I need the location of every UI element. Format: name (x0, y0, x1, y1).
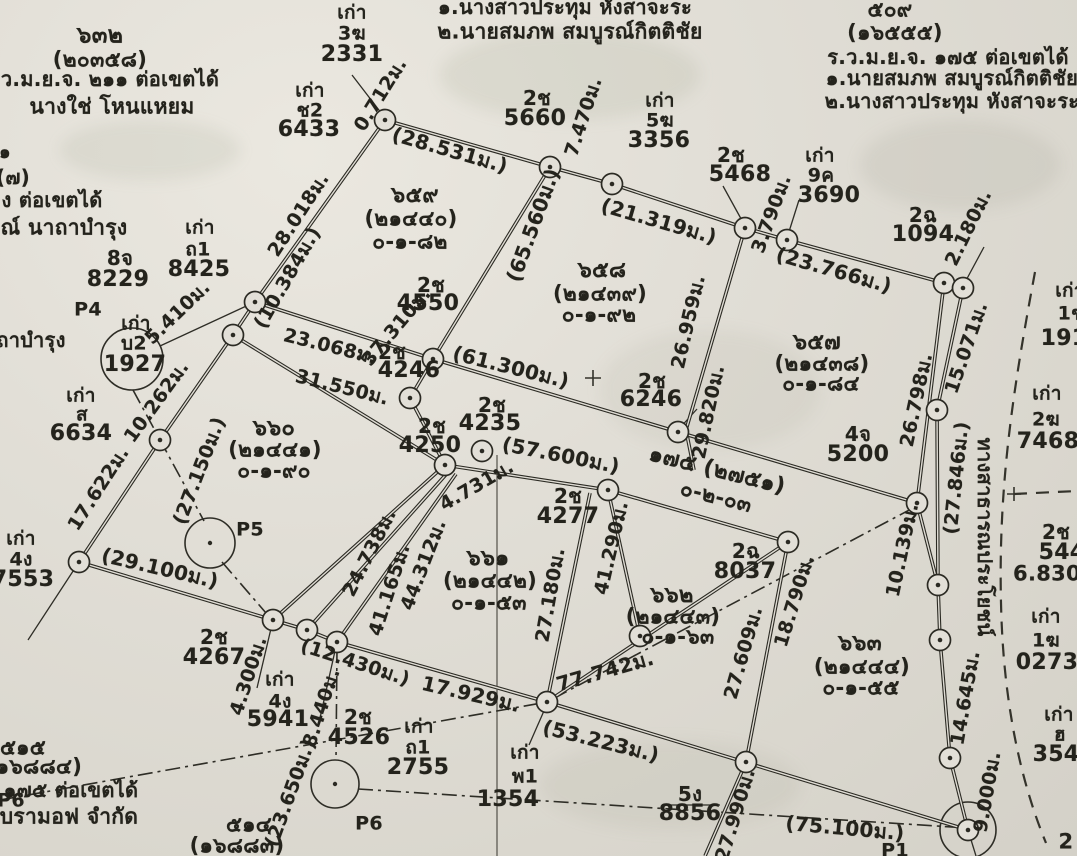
parcel-4277-no: 4277 (537, 506, 599, 528)
edge-left-partial-name2: ถาบำรุง (0, 330, 66, 350)
parcel-544-code: 2ช (1042, 522, 1070, 542)
old-marker-0273-kao: เก่า (1031, 608, 1061, 627)
edge-right-partial-2: 2 (1059, 832, 1074, 853)
parcel-8229-code: 8จ (107, 248, 133, 268)
old-marker-7553-kao: เก่า (6, 530, 36, 549)
old-marker-3356-kao: เก่า (645, 92, 675, 111)
point-label-p6-left: P6 (0, 792, 25, 811)
parcel-659-area: ๐-๑-๘๒ (372, 232, 447, 253)
parcel-4526-code: 2ช (344, 707, 372, 727)
road-name: ทางสาธารณประโยชน์ (975, 437, 995, 636)
parcel-660-area: ๐-๑-๙๐ (237, 461, 311, 482)
old-marker-0273-code: 1ฆ (1032, 632, 1060, 651)
edge-left-partial-7: (๗) (0, 167, 30, 187)
note-tl-parcel-no: ๖๓๒ (77, 25, 123, 48)
old-marker-354-no: 354 (1033, 744, 1077, 766)
note-tr-owner1: ๑.นายสมภพ สมบูรณ์กิตติชัย (826, 68, 1077, 88)
old-marker-2331-code: 3ฆ (338, 25, 366, 44)
parcel-5200-code: 4จ (845, 424, 871, 444)
old-marker-2331-no: 2331 (321, 44, 383, 66)
note-tr-deed-no: (๑๖๕๕๕) (847, 23, 943, 44)
parcel-5200-no: 5200 (827, 444, 889, 466)
old-marker-5941-no: 5941 (247, 709, 309, 731)
old-marker-354-kao: เก่า (1044, 706, 1074, 725)
parcel-4526-no: 4526 (328, 727, 390, 749)
parcel-4235-no: 4235 (459, 413, 521, 435)
edge-left-partial-name: ณ์ นาถาบำรุง (1, 218, 128, 239)
note-tr-parcel-no: ๕๐๙ (868, 0, 913, 21)
old-marker-7468-no: 7468 (1017, 431, 1077, 453)
edge-left-partial-1: ๑ (0, 144, 11, 162)
parcel-4267-no: 4267 (183, 647, 245, 669)
old-marker-191-kao: เก่า (1055, 282, 1077, 301)
old-marker-1354-kao: เก่า (510, 744, 540, 763)
parcel-659-deed: (๒๑๔๔๐) (364, 209, 457, 230)
point-label-p4: P4 (74, 301, 102, 320)
old-marker-5941-kao: เก่า (265, 671, 295, 690)
old-marker-1354-code: พ1 (512, 768, 538, 787)
parcel-8037-no: 8037 (714, 561, 776, 583)
note-tl-owner: นางใช่ โหนแหยม (29, 97, 194, 118)
old-marker-6433-no: 6433 (278, 119, 340, 141)
parcel-4267-code: 2ช (200, 627, 228, 647)
parcel-661-area: ๐-๑-๕๓ (451, 593, 527, 614)
parcel-663-no: ๖๖๓ (838, 633, 882, 655)
note-b-deed-no: (๑๖๘๘๓) (190, 836, 285, 856)
old-marker-6433-kao: เก่า (295, 82, 325, 101)
old-marker-2755-no: 2755 (387, 757, 449, 779)
old-marker-8425-kao: เก่า (185, 219, 215, 238)
note-top-owner1: ๑.นางสาวประทุม หังสาจะระ (438, 0, 692, 17)
parcel-5660-code: 2ช (523, 88, 551, 108)
parcel-1094-no: 1094 (892, 224, 954, 246)
old-marker-3690-kao: เก่า (805, 147, 835, 166)
parcel-4246-no: 4246 (378, 360, 440, 382)
measure-6830: 6.830 (1013, 564, 1077, 585)
cadastral-survey-map: ๖๓๒(๒๐๓๕๘)ว.ม.ย.จ. ๒๑๑ ต่อเขตได้นางใช่ โ… (0, 0, 1077, 856)
old-marker-191-no: 191 (1041, 328, 1077, 350)
parcel-658-no: ๖๕๘ (578, 260, 627, 282)
parcel-661-deed: (๒๑๔๔๒) (443, 571, 537, 592)
note-top-owner2: ๒.นายสมภพ สมบูรณ์กิตติชัย (437, 22, 702, 43)
point-label-p6: P6 (355, 815, 383, 834)
old-marker-1927-no: 1927 (104, 354, 166, 376)
old-marker-7468-kao: เก่า (1032, 385, 1062, 404)
old-marker-2755-kao: เก่า (404, 718, 434, 737)
parcel-661-no: ๖๖๑ (467, 548, 510, 570)
parcel-660-deed: (๒๑๔๔๑) (228, 440, 322, 461)
parcel-6246-no: 6246 (620, 389, 682, 411)
note-b-parcel-no: ๕๑๔ (226, 815, 272, 836)
note-tr-owner2: ๒.นางสาวประทุม หังสาจะระ (825, 91, 1077, 111)
parcel-8037-code: 2ฉ (732, 541, 760, 561)
parcel-5468-no: 5468 (709, 164, 771, 186)
parcel-4250-no: 4250 (399, 435, 461, 457)
parcel-663-deed: (๒๑๔๔๔) (814, 657, 910, 678)
old-marker-7468-code: 2ฆ (1032, 411, 1060, 430)
note-tl-sheet-ref: ว.ม.ย.จ. ๒๑๑ ต่อเขตได้ (1, 69, 219, 89)
note-bl-deed-no: (๑๖๘๘๔) (0, 757, 82, 778)
old-marker-6634-no: 6634 (50, 423, 112, 445)
old-marker-3356-no: 3356 (628, 130, 690, 152)
old-marker-0273-no: 0273 (1016, 652, 1077, 674)
point-label-p5: P5 (236, 521, 264, 540)
parcel-658-deed: (๒๑๔๓๙) (553, 284, 647, 305)
parcel-657-area: ๐-๑-๘๔ (782, 374, 859, 395)
point-label-p1: P1 (881, 842, 909, 856)
old-marker-1927-code: บ2 (121, 335, 147, 354)
edge-left-partial-tokhet: ง ต่อเขตได้ (2, 190, 103, 210)
old-marker-7553-no: 7553 (0, 569, 54, 591)
old-marker-191-code: 1ช (1058, 305, 1077, 324)
parcel-4277-code: 2ช (554, 486, 582, 506)
note-tr-sheet-ref: ร.ว.ม.ย.จ. ๑๗๕ ต่อเขตได้ (827, 47, 1069, 67)
parcel-5660-no: 5660 (504, 108, 566, 130)
parcel-662-area: ๐-๑-๖๓ (641, 627, 714, 648)
marker-8856-no: 8856 (659, 803, 721, 825)
parcel-663-area: ๐-๑-๕๕ (822, 678, 899, 699)
old-marker-2331-kao: เก่า (337, 4, 367, 23)
parcel-658-area: ๐-๑-๙๒ (562, 305, 637, 326)
old-marker-3690-no: 3690 (798, 185, 860, 207)
old-marker-1354-no: 1354 (477, 789, 539, 811)
parcel-659-no: ๖๕๙ (391, 185, 439, 207)
parcel-8229-no: 8229 (87, 269, 149, 291)
